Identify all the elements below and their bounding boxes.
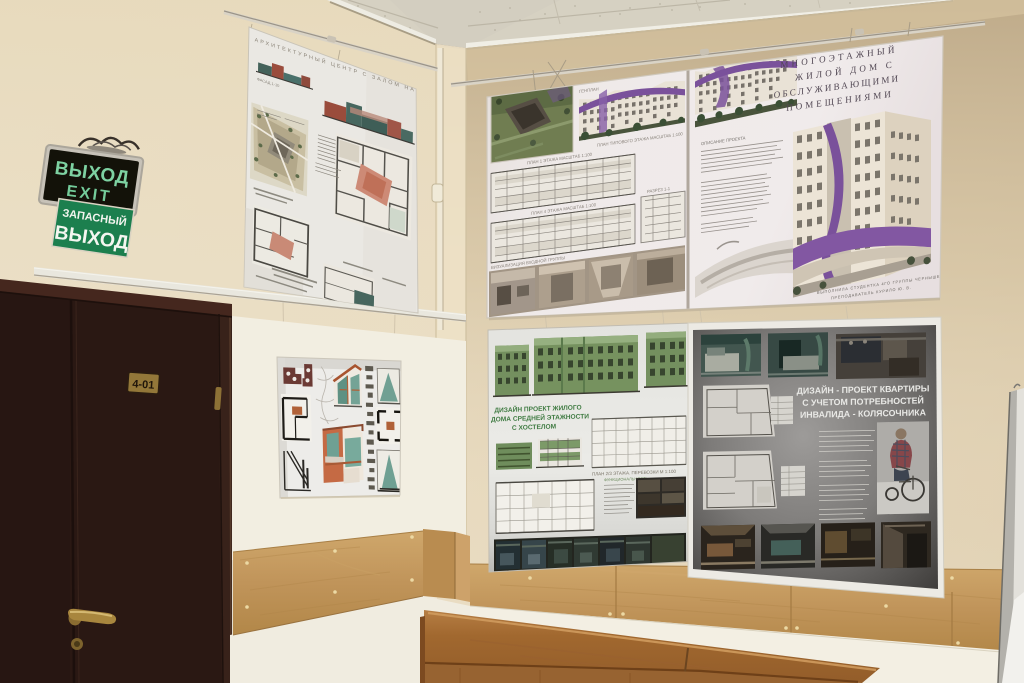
svg-text:4-01: 4-01 — [132, 378, 155, 392]
svg-text:С ХОСТЕЛОМ: С ХОСТЕЛОМ — [512, 423, 557, 432]
